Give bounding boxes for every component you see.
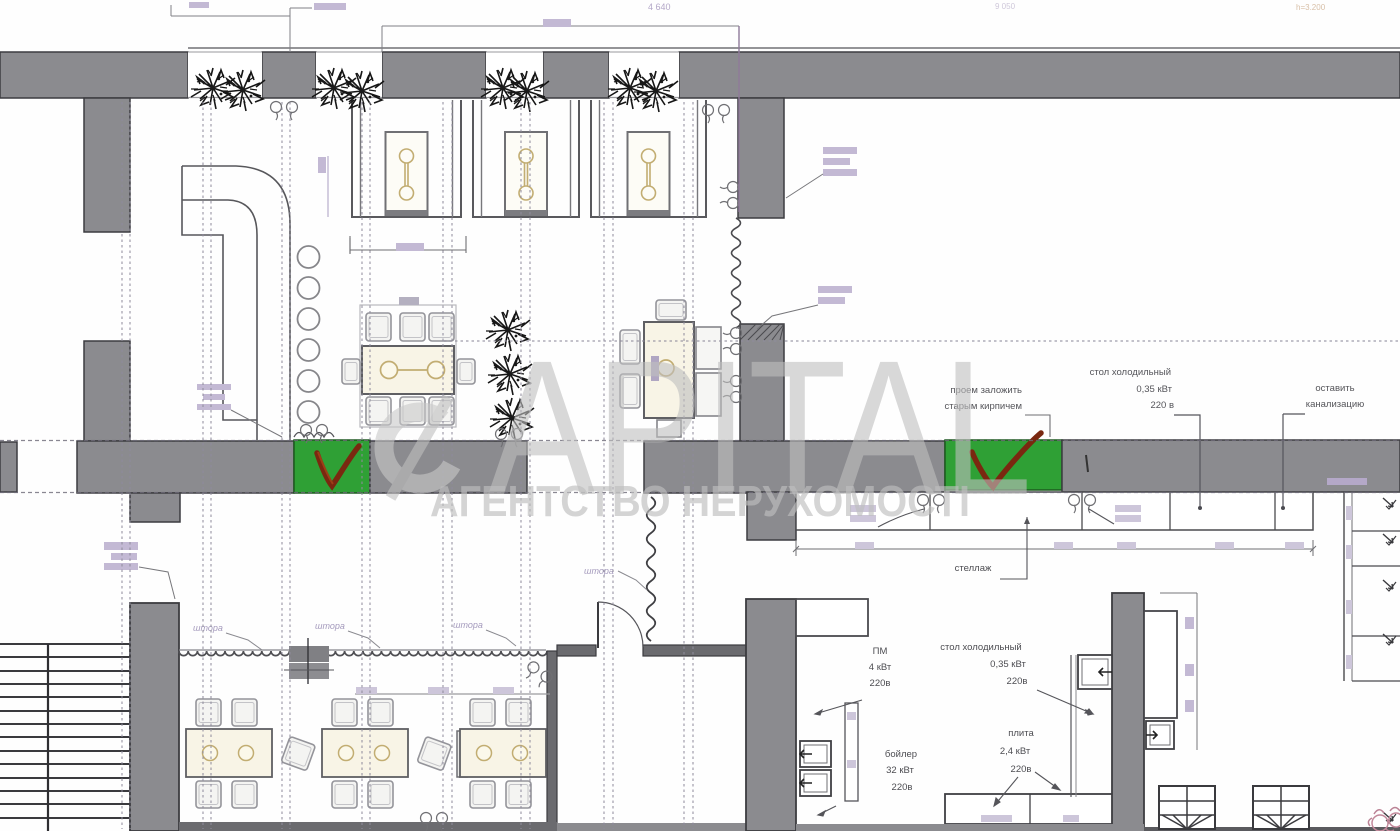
svg-text:0,35 кВт: 0,35 кВт (1136, 384, 1172, 395)
svg-text:220в: 220в (892, 782, 913, 793)
svg-text:плита: плита (1008, 728, 1034, 739)
svg-text:штора: штора (584, 566, 614, 576)
svg-text:220 в: 220 в (1150, 400, 1174, 411)
svg-text:4 кВт: 4 кВт (869, 662, 892, 673)
svg-text:штора: штора (193, 623, 223, 633)
svg-text:32 кВт: 32 кВт (886, 765, 914, 776)
svg-text:220в: 220в (1011, 764, 1032, 775)
svg-text:220в: 220в (1007, 676, 1028, 687)
svg-text:0,35 кВт: 0,35 кВт (990, 659, 1026, 670)
svg-text:АГЕНТСТВО НЕРУХОМОСТІ: АГЕНТСТВО НЕРУХОМОСТІ (430, 477, 970, 526)
svg-text:стол холодильный: стол холодильный (940, 642, 1021, 653)
svg-text:9 050: 9 050 (995, 2, 1016, 11)
svg-text:220в: 220в (870, 678, 891, 689)
svg-text:канализацию: канализацию (1306, 399, 1365, 410)
svg-text:бойлер: бойлер (885, 749, 917, 760)
svg-text:ПМ: ПМ (873, 646, 888, 657)
svg-text:2,4 кВт: 2,4 кВт (1000, 746, 1031, 757)
svg-text:стеллаж: стеллаж (955, 563, 992, 574)
svg-text:штора: штора (453, 620, 483, 630)
svg-text:оставить: оставить (1315, 383, 1354, 394)
svg-text:стол холодильный: стол холодильный (1090, 367, 1171, 378)
svg-text:4 640: 4 640 (648, 2, 671, 12)
svg-text:h=3.200: h=3.200 (1296, 3, 1326, 12)
svg-text:штора: штора (315, 621, 345, 631)
